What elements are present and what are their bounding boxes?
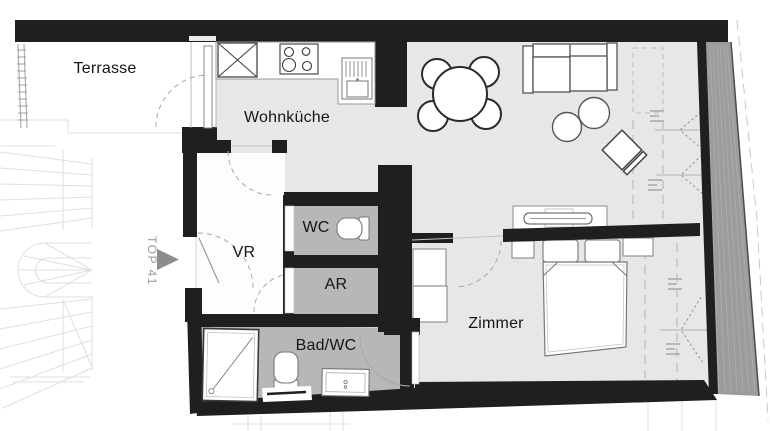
room-label-bad-wc: Bad/WC [296,337,357,355]
dining-table-icon [433,67,487,121]
washbasin-icon [322,369,369,397]
stove-icon [280,44,318,74]
floor-plan: Terrasse Wohnküche WC VR AR Bad/WC Zimme… [0,0,770,431]
double-bed-icon [543,262,627,356]
sofa-icon [523,43,617,93]
bath-door-leaf [412,332,419,384]
terrace-door-leaf [204,46,212,128]
toilet-icon [337,217,369,240]
sideboard-tv-icon [513,206,607,229]
room-label-vr: VR [233,244,256,262]
terrace-railing-icon [17,44,28,128]
ar-door-leaf [285,268,294,313]
door-swing-arc [156,75,208,127]
unit-number-label: TOP 41 [145,236,159,286]
room-label-ar: AR [325,276,348,294]
room-label-wc: WC [302,219,329,237]
nightstand-icon [512,241,534,258]
tall-cabinet-icon [218,43,257,77]
wardrobe-icon [413,249,447,322]
room-label-wohnkueche: Wohnküche [244,109,330,127]
pillow-icon [585,240,620,262]
nightstand-icon [623,238,653,256]
radiator-icon [262,386,312,402]
kitchen-sink-icon [342,58,372,99]
room-label-zimmer: Zimmer [468,315,523,333]
floor-vr [197,153,285,314]
wc-door-leaf [285,206,294,251]
shower-icon [202,328,258,401]
room-label-terrasse: Terrasse [74,60,137,78]
terrace-door-lintel [189,36,216,41]
pillow-icon [543,240,578,262]
stairwell-icon [0,150,92,408]
entrance-arrow-icon [157,249,179,270]
toilet-icon [274,352,298,390]
